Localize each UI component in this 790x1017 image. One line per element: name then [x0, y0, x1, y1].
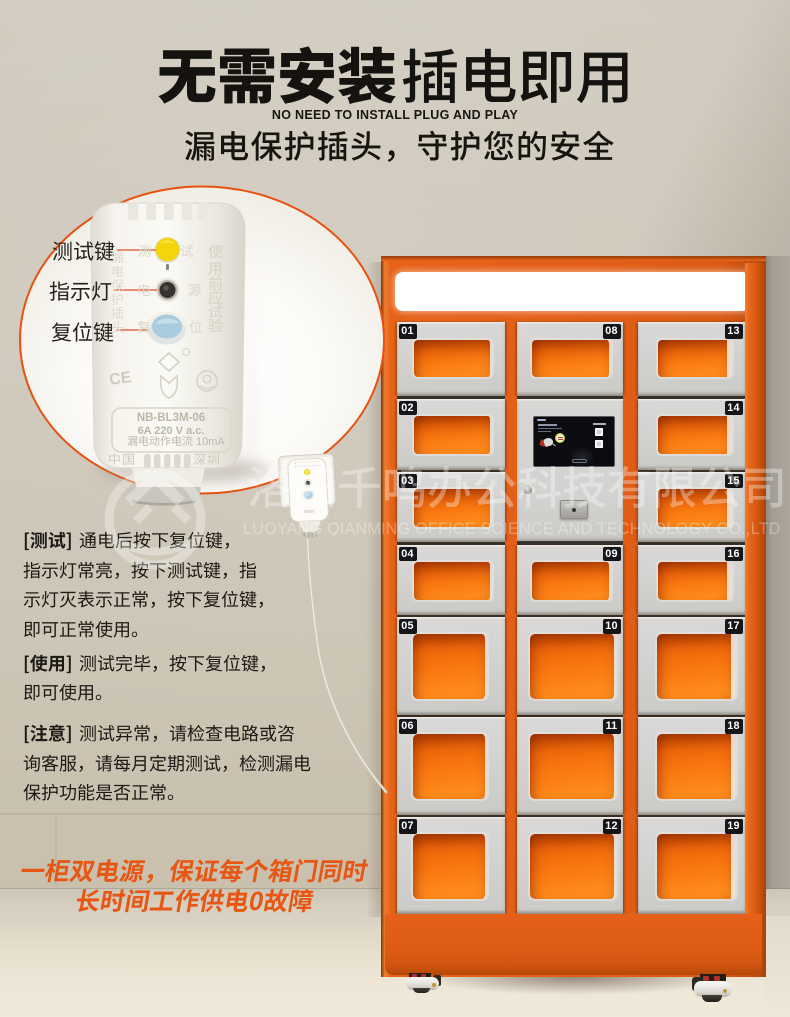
svg-text:6A 220 V a.c.: 6A 220 V a.c.	[138, 425, 205, 437]
svg-text:LUOYANG QIANMING OFFICE SCIENC: LUOYANG QIANMING OFFICE SCIENCE AND TECH…	[243, 520, 781, 538]
svg-text:NO NEED TO INSTALL PLUG AND PL: NO NEED TO INSTALL PLUG AND PLAY	[272, 108, 519, 122]
svg-text:NB-BL3M-06: NB-BL3M-06	[137, 412, 205, 424]
svg-text:CE: CE	[108, 369, 133, 389]
svg-text:10mA: 10mA	[196, 436, 225, 448]
